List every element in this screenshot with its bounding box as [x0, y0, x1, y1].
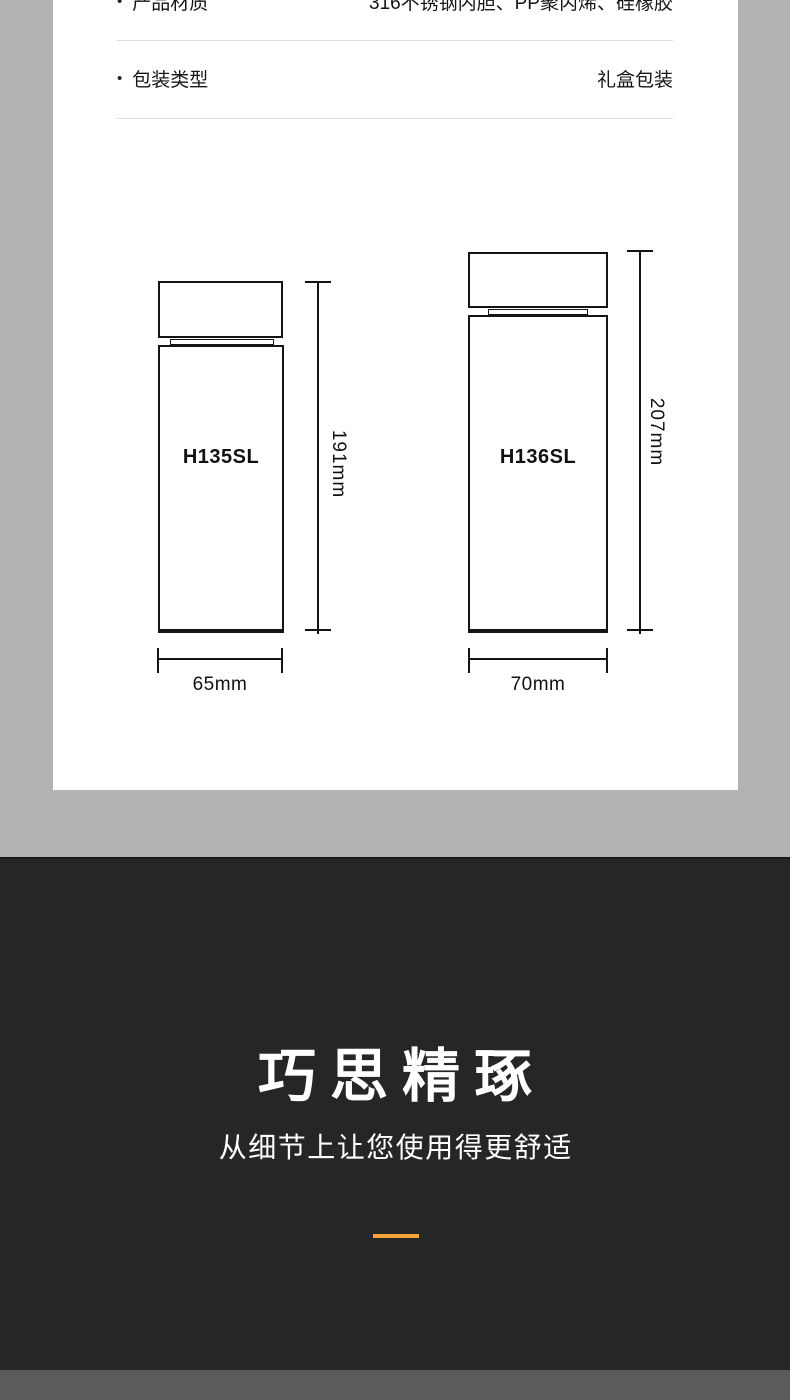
next-section-edge: [0, 1370, 790, 1400]
spec-label-material: 产品材质: [132, 0, 208, 15]
width-dimension-line: [157, 658, 283, 660]
dimension-end-cap: [627, 629, 653, 631]
width-dimension-line: [468, 658, 608, 660]
height-dimension-label: 191mm: [327, 430, 349, 498]
spec-card: • 产品材质 316不锈钢内胆、PP聚丙烯、硅橡胶 • 包装类型 礼盒包装 H1…: [53, 0, 738, 790]
bullet-icon: •: [117, 70, 122, 87]
bottle-body-outline: [468, 315, 608, 633]
divider: [117, 118, 673, 119]
feature-title: 巧思精琢: [0, 1029, 790, 1113]
spec-row-material: • 产品材质 316不锈钢内胆、PP聚丙烯、硅橡胶: [117, 0, 673, 15]
bottle-model-label: H135SL: [158, 446, 284, 469]
product-detail-page: • 产品材质 316不锈钢内胆、PP聚丙烯、硅橡胶 • 包装类型 礼盒包装 H1…: [0, 0, 790, 1400]
bullet-icon: •: [117, 0, 122, 10]
spec-row-packaging: • 包装类型 礼盒包装: [117, 64, 673, 92]
bottle-cap-outline: [158, 281, 283, 338]
feature-subtitle: 从细节上让您使用得更舒适: [0, 1126, 790, 1166]
feature-banner-section: 巧思精琢 从细节上让您使用得更舒适: [0, 857, 790, 1370]
width-dimension-label: 70mm: [468, 674, 608, 696]
bottle-body-outline: [158, 345, 284, 633]
dimension-end-tick: [157, 648, 159, 673]
bottle-cap-outline: [468, 252, 608, 308]
dimension-end-cap: [305, 281, 331, 283]
width-dimension-label: 65mm: [157, 674, 283, 696]
dimension-end-tick: [468, 648, 470, 673]
bottle-model-label: H136SL: [468, 446, 608, 469]
height-dimension-line: [317, 281, 319, 634]
dimension-end-tick: [606, 648, 608, 673]
divider: [117, 40, 673, 41]
height-dimension-line: [639, 250, 641, 634]
accent-divider: [373, 1234, 419, 1238]
spec-value-material: 316不锈钢内胆、PP聚丙烯、硅橡胶: [369, 0, 673, 15]
height-dimension-label: 207mm: [645, 398, 667, 466]
dimension-end-cap: [627, 250, 653, 252]
spec-label-packaging: 包装类型: [132, 65, 208, 92]
dimension-end-tick: [281, 648, 283, 673]
spec-value-packaging: 礼盒包装: [597, 65, 673, 92]
dimension-end-cap: [305, 629, 331, 631]
